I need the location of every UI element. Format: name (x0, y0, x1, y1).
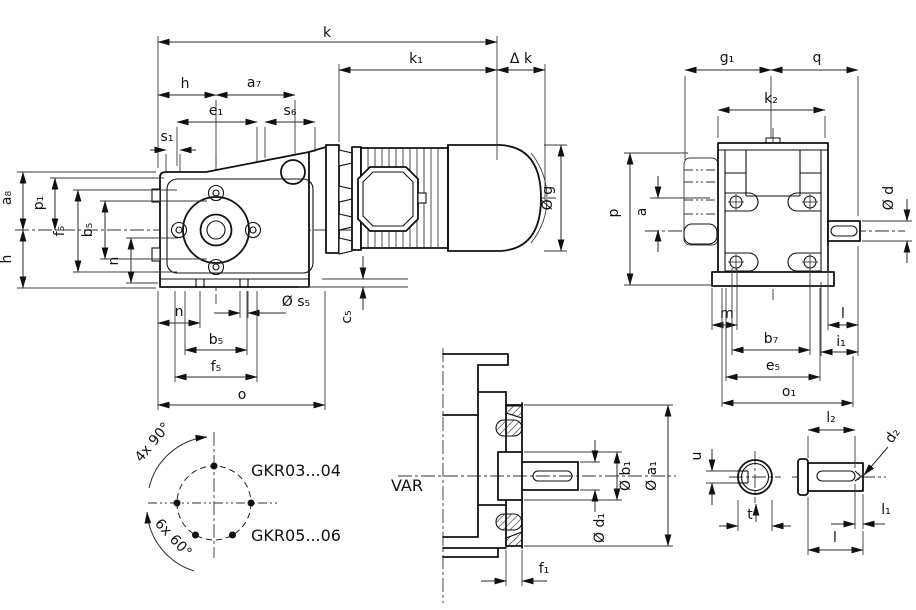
dim-label-t: t (747, 507, 753, 523)
output-shaft (828, 221, 860, 241)
dim-label-f1: f₁ (539, 561, 550, 577)
dim-label-b5-left: b₅ (80, 223, 96, 238)
side-view: k k₁ Δ k h a₇ e₁ s₆ s₁ a₈ h p₁ f₅ b₅ n n… (0, 25, 567, 410)
dim-label-b5-bottom: b₅ (209, 332, 224, 348)
dim-label-e5: e₅ (766, 358, 780, 374)
dim-label-l-shaft: l (833, 530, 837, 546)
technical-drawing-page: k k₁ Δ k h a₇ e₁ s₆ s₁ a₈ h p₁ f₅ b₅ n n… (0, 0, 916, 610)
bolt-circle-view: 4x 90° 6x 60° GKR03...04 GKR05...06 (132, 419, 341, 571)
dim-label-i1: i₁ (836, 334, 846, 350)
dim-label-h-left: h (0, 255, 15, 264)
variant-label: VAR (391, 476, 423, 495)
terminal-box (358, 167, 418, 231)
dim-label-k2: k₂ (764, 91, 778, 107)
model-label-gkr03-04: GKR03...04 (251, 461, 341, 480)
dim-label-b7: b₇ (764, 331, 779, 347)
cable-gland (418, 193, 426, 203)
dim-label-a1: Ø a₁ (644, 461, 660, 491)
dim-label-k: k (323, 25, 332, 41)
bolt-pattern-4x90: 4x 90° (132, 419, 174, 465)
dim-label-e1: e₁ (209, 103, 223, 119)
dim-label-m: m (720, 306, 734, 322)
dim-label-o: o (238, 387, 247, 403)
dim-label-s5: Ø s₅ (282, 294, 310, 310)
gear-housing (160, 152, 309, 287)
dim-label-a7: a₇ (247, 75, 261, 91)
dim-label-u: u (689, 452, 705, 461)
end-view: g₁ q k₂ p a Ø d m l b₇ i₁ e₅ o₁ (606, 50, 912, 407)
dim-label-p: p (606, 208, 622, 217)
dim-label-d1: Ø d₁ (592, 513, 608, 543)
dim-label-q: q (813, 50, 822, 66)
dim-label-g1: g₁ (720, 50, 735, 66)
dim-label-h-top: h (181, 76, 190, 92)
dim-label-f5-left: f₅ (52, 226, 68, 237)
dim-label-k1: k₁ (409, 51, 423, 67)
dim-label-f5-bottom: f₅ (211, 359, 222, 375)
dim-label-a8: a₈ (0, 191, 15, 206)
dim-label-b1: Ø b₁ (618, 461, 634, 491)
dim-label-l2: l₂ (826, 410, 836, 426)
dim-label-l1: l₁ (881, 502, 891, 518)
shaft-collar (798, 459, 808, 495)
dim-label-g: Ø g (540, 186, 556, 210)
dim-label-c5: c₅ (339, 310, 355, 323)
motor-body (448, 145, 541, 251)
model-label-gkr05-06: GKR05...06 (251, 526, 341, 545)
dim-label-d: Ø d (881, 186, 897, 210)
dim-label-s6: s₆ (284, 103, 297, 119)
dim-label-l-end: l (841, 306, 845, 322)
mounting-feet (712, 272, 834, 286)
motor-flange (326, 145, 339, 253)
dim-label-delta-k: Δ k (510, 51, 533, 67)
motor-silhouette (684, 158, 718, 245)
dim-label-s1: s₁ (161, 129, 174, 145)
bolt-pattern-6x60: 6x 60° (151, 516, 194, 561)
dim-label-d2: d₂ (882, 425, 903, 446)
dim-label-o1: o₁ (782, 384, 796, 400)
dim-label-n-left: n (106, 257, 122, 266)
dim-label-a: a (634, 208, 650, 217)
gearmotor-dimension-drawing: k k₁ Δ k h a₇ e₁ s₆ s₁ a₈ h p₁ f₅ b₅ n n… (0, 0, 916, 610)
dim-label-n-bottom: n (175, 304, 184, 320)
dim-label-p1: p₁ (31, 196, 47, 211)
flange-variant-view: VAR Ø b₁ Ø a₁ Ø d₁ f₁ (391, 348, 676, 603)
shaft-detail-view: u t l₂ d₂ l₁ l (689, 410, 903, 555)
